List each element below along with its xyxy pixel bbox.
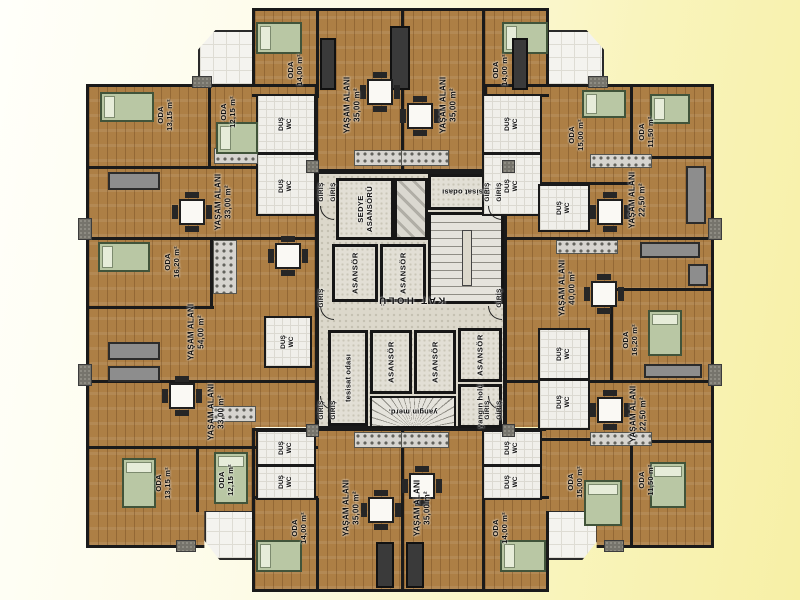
label-oda: ODA11,50 m² <box>637 116 655 147</box>
column <box>502 160 515 173</box>
label-dus-wc: DUŞ WC <box>504 114 520 134</box>
label-giris: GİRİŞ <box>318 400 326 419</box>
label-giris: GİRİŞ <box>496 400 504 419</box>
label-living-bottom-left: YAŞAM ALANI33,00 m² <box>206 384 225 441</box>
wall <box>538 378 590 381</box>
wall <box>482 8 485 98</box>
label-living-bottom-center-right: YAŞAM ALANI35,00 m² <box>412 480 431 537</box>
label-oda: ODA16,20 m² <box>163 246 181 278</box>
wall <box>630 84 633 158</box>
label-oda: ODA16,20 m² <box>621 324 639 356</box>
terrace-bottom-left <box>204 510 256 560</box>
bed <box>98 242 150 272</box>
label-dus-wc: DUŞ WC <box>556 392 572 412</box>
sofa <box>640 242 700 258</box>
column <box>176 540 196 552</box>
label-living-left-middle: YAŞAM ALANI54,00 m² <box>186 304 205 361</box>
wall <box>610 288 714 291</box>
label-dus-wc: DUŞ WC <box>504 472 520 492</box>
wall <box>256 464 316 467</box>
label-giris: GİRİŞ <box>330 400 338 419</box>
label-oda: ODA14,00 m² <box>491 54 509 86</box>
bed <box>650 462 686 508</box>
wall <box>256 152 316 155</box>
label-elevator-1: ASANSÖR <box>351 252 360 294</box>
wall <box>630 440 633 548</box>
sofa <box>108 342 160 360</box>
bed <box>256 22 302 54</box>
label-dus-wc: DUŞ WC <box>278 176 294 196</box>
sofa <box>406 542 424 588</box>
label-dus-wc: DUŞ WC <box>278 438 294 458</box>
bed <box>582 90 626 118</box>
bathroom-block-left-top <box>256 94 316 216</box>
service-shaft <box>394 178 428 240</box>
sofa <box>108 366 160 382</box>
column <box>78 364 92 386</box>
label-oda: ODA14,00 m² <box>491 512 509 544</box>
bed <box>500 540 546 572</box>
bed <box>584 480 622 526</box>
kitchen-counter <box>213 240 237 294</box>
kitchen-counter <box>354 432 402 448</box>
label-living-bottom-right: YAŞAM ALANI22,50 m² <box>628 386 647 443</box>
label-dus-wc: DUŞ WC <box>278 472 294 492</box>
column <box>306 160 319 173</box>
label-giris: GİRİŞ <box>496 182 504 201</box>
label-floor-hall: KAT HOLÜ <box>377 294 445 305</box>
label-dus-wc: DUŞ WC <box>280 332 296 352</box>
label-dus-wc: DUŞ WC <box>504 438 520 458</box>
sofa <box>512 38 528 90</box>
bed <box>650 94 690 124</box>
label-giris: GİRİŞ <box>484 182 492 201</box>
wall <box>482 464 542 467</box>
label-living-top-right: YAŞAM ALANI22,50 m² <box>627 172 646 229</box>
wall <box>316 498 319 592</box>
dining-table <box>407 103 433 129</box>
kitchen-counter <box>354 150 402 166</box>
dining-table <box>597 199 623 225</box>
column <box>192 76 212 88</box>
kitchen-counter <box>590 154 652 168</box>
label-utility-room-bottom: tesisat odası <box>344 354 353 402</box>
kitchen-counter <box>556 240 618 254</box>
wardrobe <box>390 26 410 90</box>
sofa <box>644 364 702 378</box>
column <box>502 424 515 437</box>
dining-table <box>591 281 617 307</box>
label-giris: GİRİŞ <box>484 400 492 419</box>
column <box>708 218 722 240</box>
label-living-right-middle: YAŞAM ALANI40,00 m² <box>557 260 576 317</box>
dining-table <box>367 79 393 105</box>
dining-table <box>597 397 623 423</box>
label-giris: GİRİŞ <box>330 182 338 201</box>
label-living-top-center-right: YAŞAM ALANI35,00 m² <box>438 77 457 134</box>
label-giris: GİRİŞ <box>496 288 504 307</box>
label-oda: ODA12,15 m² <box>217 464 235 496</box>
label-stretcher-elevator: SEDYE ASANSÖRÜ <box>356 182 374 236</box>
label-dus-wc: DUŞ WC <box>556 198 572 218</box>
label-dus-wc: DUŞ WC <box>556 344 572 364</box>
sofa <box>686 166 706 224</box>
label-oda: ODA15,00 m² <box>567 119 585 151</box>
wall <box>208 84 211 168</box>
wall <box>316 8 319 98</box>
sofa <box>108 172 160 190</box>
label-living-top-left: YAŞAM ALANI33,00 m² <box>213 174 232 231</box>
label-dus-wc: DUŞ WC <box>278 114 294 134</box>
bed <box>122 458 156 508</box>
label-giris: GİRİŞ <box>318 288 326 307</box>
label-oda: ODA14,00 m² <box>290 512 308 544</box>
label-oda: ODA12,15 m² <box>219 96 237 128</box>
label-elevator-2: ASANSÖR <box>399 252 408 294</box>
label-oda: ODA15,00 m² <box>566 466 584 498</box>
label-utility-room-top: tesisat odası <box>442 188 490 197</box>
sofa <box>320 38 336 90</box>
bed <box>100 92 154 122</box>
wall <box>482 498 485 592</box>
label-oda: ODA14,00 m² <box>286 54 304 86</box>
armchair <box>688 264 708 286</box>
dining-table <box>169 383 195 409</box>
column <box>306 424 319 437</box>
label-living-bottom-center-left: YAŞAM ALANI35,00 m² <box>341 480 360 537</box>
stairs-divider <box>462 230 472 286</box>
label-living-top-center-left: YAŞAM ALANI35,00 m² <box>342 77 361 134</box>
column <box>78 218 92 240</box>
sofa <box>376 542 394 588</box>
column <box>588 76 608 88</box>
column <box>604 540 624 552</box>
column <box>708 364 722 386</box>
label-elevator-3: ASANSÖR <box>387 341 396 383</box>
wall <box>482 152 542 155</box>
label-fire-stairs: yangın merd. <box>388 408 437 417</box>
floor-plan: SEDYE ASANSÖRÜ tesisat odası ASANSÖR ASA… <box>0 0 800 600</box>
dining-table <box>275 243 301 269</box>
kitchen-counter <box>401 432 449 448</box>
label-oda: ODA13,15 m² <box>156 99 174 131</box>
label-dus-wc: DUŞ WC <box>504 176 520 196</box>
wall <box>196 446 199 512</box>
label-oda: ODA13,15 m² <box>154 467 172 499</box>
bed <box>648 310 682 356</box>
label-oda: ODA11,50 m² <box>637 464 655 495</box>
label-elevator-4: ASANSÖR <box>431 341 440 383</box>
label-elevator-5: ASANSÖR <box>476 334 485 376</box>
label-giris: GİRİŞ <box>318 182 326 201</box>
kitchen-counter <box>401 150 449 166</box>
dining-table <box>179 199 205 225</box>
dining-table <box>368 497 394 523</box>
bed <box>256 540 302 572</box>
